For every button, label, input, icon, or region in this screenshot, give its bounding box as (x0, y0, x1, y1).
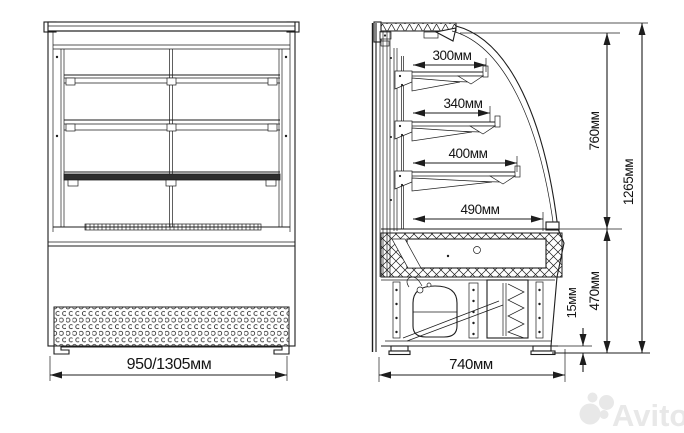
avito-watermark-text: Avito (612, 398, 684, 433)
foot-height-label-15: 15мм (564, 287, 579, 318)
side-shelf-2 (395, 116, 500, 141)
shelf-depth-label-400: 400мм (448, 146, 487, 161)
side-section-view: 300мм 340мм 400мм 490мм 760мм (373, 22, 651, 382)
counter-depth-label-490: 490мм (460, 202, 499, 217)
compressor (407, 277, 457, 337)
front-deck-strip (85, 224, 261, 230)
shelf-depth-label-300: 300мм (432, 48, 471, 63)
dim-base-height-470: 470мм (587, 229, 611, 353)
dim-counter-depth-490: 490мм (413, 202, 543, 231)
front-elevation-view: 950/1305мм (44, 22, 299, 381)
front-shelf-3 (64, 172, 280, 186)
shelf-depth-label-340: 340мм (443, 96, 482, 111)
machine-compartment (381, 277, 558, 346)
dim-shelf-depth-400: 400мм (413, 146, 517, 172)
front-shelf-2 (64, 120, 280, 131)
dim-total-height-1265: 1265мм (621, 23, 646, 353)
front-ventilation-grille (54, 307, 289, 347)
front-top-band (48, 22, 295, 31)
side-shelf-3 (395, 166, 520, 191)
screenshot-canvas: 950/1305мм (0, 0, 684, 433)
avito-watermark: Avito (580, 393, 684, 433)
display-case-technical-drawing: 950/1305мм (0, 0, 684, 433)
front-shelf-1 (64, 75, 280, 85)
side-rear-foot (391, 346, 408, 351)
dim-shelf-depth-300: 300мм (413, 48, 486, 72)
total-height-label-1265: 1265мм (621, 159, 636, 205)
glass-height-label-760: 760мм (587, 111, 602, 150)
base-depth-label-740: 740мм (449, 356, 493, 373)
front-width-label: 950/1305мм (127, 356, 212, 373)
dim-front-width: 950/1305мм (50, 356, 287, 381)
side-light-fixture (424, 32, 438, 38)
side-front-foot (533, 346, 551, 351)
base-height-label-470: 470мм (587, 271, 602, 310)
avito-logo-icon (580, 393, 615, 425)
dim-glass-height-760: 760мм (587, 33, 611, 229)
side-shelf-1 (395, 66, 488, 91)
dim-foot-height-15: 15мм (564, 287, 587, 372)
dim-shelf-depth-340: 340мм (413, 96, 490, 122)
